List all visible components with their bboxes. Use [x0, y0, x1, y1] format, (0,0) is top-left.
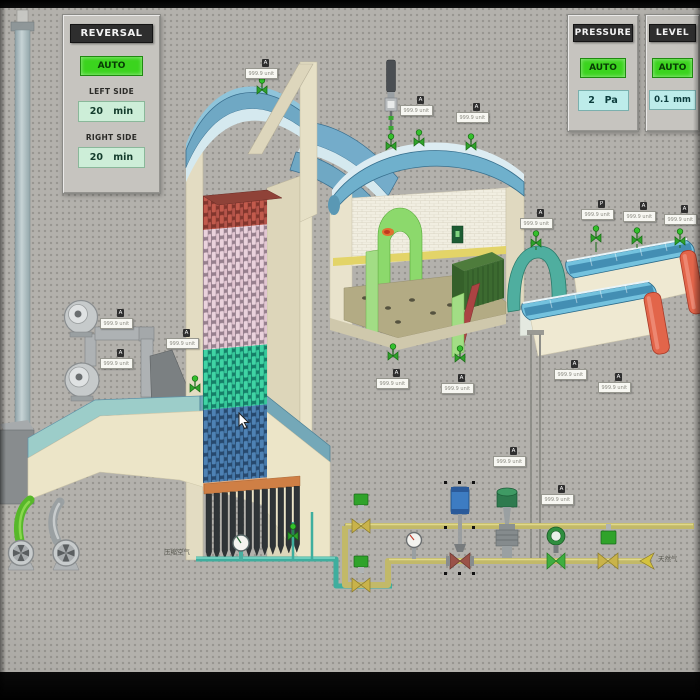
furnace — [330, 182, 524, 357]
reversal-panel: REVERSAL AUTO LEFT SIDE 20 min RIGHT SID… — [62, 14, 161, 194]
valve-icon[interactable] — [531, 231, 541, 247]
left-side-time-display[interactable]: 20 min — [78, 101, 144, 122]
gas-pressure-gauge[interactable] — [407, 533, 422, 560]
pressure-value: 2 — [588, 95, 595, 106]
sensor-readout[interactable]: A 999.9 unit — [245, 59, 278, 79]
valve-icon[interactable] — [386, 134, 396, 150]
valve-icon[interactable] — [591, 226, 601, 242]
sensor-tag-icon: A — [262, 59, 269, 67]
sensor-readout[interactable]: A 999.9 unit — [400, 96, 433, 116]
sensor-readout[interactable]: A 999.9 unit — [456, 103, 489, 123]
chimney-stack — [11, 10, 34, 472]
sensor-tag-icon: A — [117, 309, 124, 317]
sensor-tag-icon: A — [571, 360, 578, 368]
level-unit: mm — [673, 95, 691, 105]
revers al-title: REVERSAL — [70, 24, 153, 43]
dilution-fan-left[interactable] — [8, 500, 34, 570]
gas-flow-arrow — [640, 553, 654, 569]
sensor-readout[interactable]: A 999.9 unit — [664, 205, 697, 225]
sensor-tag-icon: A — [458, 374, 465, 382]
photo-top-bar — [0, 0, 700, 8]
sensor-tag-icon: A — [417, 96, 424, 104]
sensor-readout[interactable]: A 999.9 unit — [520, 209, 553, 229]
flue-gas-duct — [28, 392, 330, 560]
left-side-unit: min — [113, 106, 133, 117]
reversal-auto-button[interactable]: AUTO — [80, 56, 142, 76]
sensor-readout[interactable]: A 999.9 unit — [100, 349, 133, 369]
natural-gas-pipe — [345, 525, 694, 586]
sensor-readout[interactable]: A 999.9 unit — [541, 485, 574, 505]
valve-icon[interactable] — [632, 228, 642, 244]
sensor-readout[interactable]: A 999.9 unit — [493, 447, 526, 467]
hmi-content: REVERSAL AUTO LEFT SIDE 20 min RIGHT SID… — [0, 8, 700, 672]
sensor-tag-icon: A — [510, 447, 517, 455]
pressure-auto-button[interactable]: AUTO — [580, 58, 625, 78]
sensor-readout[interactable]: A 999.9 unit — [554, 360, 587, 380]
sensor-tag-icon: A — [393, 369, 400, 377]
sensor-tag-icon: A — [615, 373, 622, 381]
photo-bottom-bar — [0, 672, 700, 700]
sensor-readout[interactable]: A 999.9 unit — [441, 374, 474, 394]
sensor-readout[interactable]: A 999.9 unit — [598, 373, 631, 393]
sensor-readout[interactable]: P 999.9 unit — [581, 200, 614, 220]
hmi-screen: REVERSAL AUTO LEFT SIDE 20 min RIGHT SID… — [0, 8, 700, 672]
sensor-tag-icon: A — [537, 209, 544, 217]
level-title: LEVEL — [649, 24, 696, 42]
compressed-air-label: 压缩空气 — [164, 546, 190, 556]
right-side-label: RIGHT SIDE — [86, 133, 137, 142]
sensor-tag-icon: A — [558, 485, 565, 493]
level-value-display[interactable]: 0.1 mm — [649, 90, 696, 110]
right-side-time-display[interactable]: 20 min — [78, 147, 144, 168]
sensor-readout[interactable]: A 999.9 unit — [100, 309, 133, 329]
level-panel: LEVEL AUTO 0.1 mm — [645, 14, 700, 132]
sensor-readout[interactable]: A 999.9 unit — [376, 369, 409, 389]
sensor-tag-icon: A — [681, 205, 688, 213]
sensor-tag-icon: A — [473, 103, 480, 111]
sensor-tag-icon: P — [598, 200, 605, 208]
right-side-unit: min — [113, 152, 133, 163]
right-side-value: 20 — [90, 152, 103, 163]
regenerative-vessel-front[interactable] — [522, 281, 671, 356]
pressure-value-display[interactable]: 2 Pa — [578, 90, 629, 111]
pressure-panel: PRESSURE AUTO 2 Pa — [567, 14, 639, 132]
dilution-fan-right[interactable] — [53, 502, 79, 570]
support-pillar — [300, 62, 317, 222]
air-pressure-gauge[interactable] — [233, 535, 249, 560]
pressure-title: PRESSURE — [573, 24, 634, 42]
sensor-tag-icon: A — [183, 329, 190, 337]
sensor-readout[interactable]: A 999.9 unit — [166, 329, 199, 349]
sensor-tag-icon: A — [117, 349, 124, 357]
hmi-screen-photo: REVERSAL AUTO LEFT SIDE 20 min RIGHT SID… — [0, 0, 700, 700]
mouse-cursor — [238, 412, 252, 430]
pressure-unit: Pa — [605, 95, 618, 106]
checker-pack — [203, 190, 267, 491]
sensor-readout[interactable]: A 999.9 unit — [623, 202, 656, 222]
left-side-label: LEFT SIDE — [89, 87, 134, 96]
sensor-tag-icon: A — [640, 202, 647, 210]
level-auto-button[interactable]: AUTO — [652, 58, 693, 78]
level-probe[interactable] — [385, 60, 397, 140]
level-value: 0.1 — [654, 95, 669, 105]
natural-gas-label: 天然气 — [658, 553, 678, 563]
left-side-value: 20 — [90, 106, 103, 117]
combustion-air-fan-lower[interactable] — [65, 363, 99, 401]
